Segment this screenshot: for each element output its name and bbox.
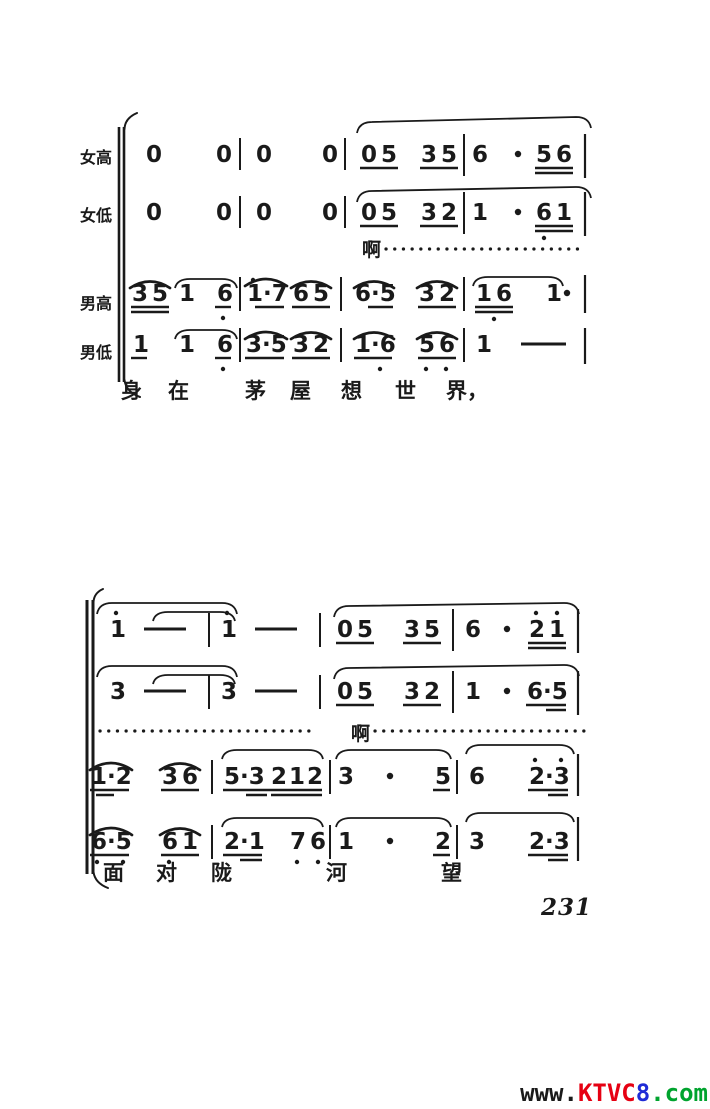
- note: 0: [216, 142, 232, 168]
- watermark: www.KTVC8.com: [520, 1081, 708, 1105]
- note: 05: [337, 617, 377, 643]
- note: 1·2: [91, 764, 132, 790]
- octave-dot: [542, 236, 546, 240]
- part-label: 女低: [80, 206, 112, 225]
- phrase-slur: [357, 117, 591, 133]
- brace-curl: [94, 589, 104, 602]
- octave-dot: [221, 367, 225, 371]
- note: 212: [271, 764, 325, 790]
- note: 1·7: [247, 281, 288, 307]
- tie-bracket: [222, 750, 323, 759]
- lyric: 身: [121, 379, 142, 403]
- lyric: 世: [395, 380, 416, 403]
- page-number: 231: [541, 894, 592, 921]
- note: 6: [217, 332, 233, 358]
- note: 35: [404, 617, 444, 643]
- note: 1: [179, 332, 195, 358]
- lyric: 茅: [245, 379, 266, 403]
- lyric: 屋: [290, 380, 311, 403]
- lyric: 对: [156, 861, 177, 885]
- note: 1: [546, 281, 562, 307]
- note: 1: [465, 679, 481, 705]
- dot-note: [515, 209, 521, 215]
- vocable: 啊: [351, 723, 370, 745]
- watermark-segment: 8: [636, 1079, 650, 1107]
- score-svg: 女高女低男高男低0000053565600000532161啊35161·765…: [0, 0, 710, 1109]
- note: 35: [421, 142, 461, 168]
- note: 6: [469, 764, 485, 790]
- note: 5·3: [224, 764, 265, 790]
- phrase-slur: [334, 603, 579, 617]
- note: 3: [338, 764, 354, 790]
- note: 56: [536, 142, 576, 168]
- octave-dot: [316, 860, 320, 864]
- note: 6·5: [91, 829, 132, 855]
- note: 6·5: [527, 679, 568, 705]
- note: 0: [256, 200, 272, 226]
- octave-dot: [533, 758, 537, 762]
- dot-note: [504, 626, 510, 632]
- note: 1: [472, 200, 488, 226]
- score-page: 女高女低男高男低0000053565600000532161啊35161·765…: [0, 0, 710, 1109]
- note: 32: [421, 200, 461, 226]
- octave-dot: [534, 611, 538, 615]
- note: 0: [146, 200, 162, 226]
- note: 0: [322, 200, 338, 226]
- lyric: 面: [103, 862, 124, 885]
- lyric: 陇: [211, 862, 232, 885]
- octave-dot: [114, 611, 118, 615]
- note: 21: [529, 617, 569, 643]
- brace-curl: [125, 113, 138, 129]
- octave-dot: [424, 367, 428, 371]
- note: 6: [465, 617, 481, 643]
- note: 2·1: [224, 829, 265, 855]
- octave-dot: [559, 758, 563, 762]
- octave-dot: [221, 316, 225, 320]
- dot-note: [515, 151, 521, 157]
- octave-dot: [444, 367, 448, 371]
- lyric: 望: [441, 861, 462, 885]
- note: 3: [110, 679, 126, 705]
- watermark-segment: .com: [650, 1079, 708, 1107]
- note: 32: [404, 679, 444, 705]
- tie-bracket: [222, 818, 323, 827]
- lyric: 想: [341, 380, 362, 403]
- note: 1: [179, 281, 195, 307]
- note: 2: [435, 829, 451, 855]
- octave-dot: [492, 317, 496, 321]
- note: 6: [217, 281, 233, 307]
- note: 2·3: [529, 764, 570, 790]
- tie-bracket: [336, 818, 451, 827]
- note: 6: [472, 142, 488, 168]
- note: 05: [361, 200, 401, 226]
- note: 0: [146, 142, 162, 168]
- note: 1: [476, 332, 492, 358]
- dot-note: [387, 773, 393, 779]
- lyric: 在: [168, 379, 189, 403]
- tie-bracket: [466, 813, 574, 822]
- note: 05: [361, 142, 401, 168]
- lyric: 界，: [446, 380, 488, 403]
- tie-bracket: [336, 750, 451, 759]
- vocable: 啊: [362, 239, 381, 261]
- part-label: 男低: [80, 343, 112, 362]
- octave-dot: [555, 611, 559, 615]
- note: 2·3: [529, 829, 570, 855]
- octave-dot: [95, 860, 99, 864]
- part-label: 男高: [80, 294, 112, 313]
- note: 1: [110, 617, 126, 643]
- note: 05: [337, 679, 377, 705]
- note: 16: [476, 281, 516, 307]
- dot-note: [504, 688, 510, 694]
- phrase-slur: [334, 665, 579, 679]
- dot-note: [387, 838, 393, 844]
- watermark-segment: KTVC: [578, 1079, 636, 1107]
- lyric: 河: [326, 862, 347, 885]
- part-label: 女高: [80, 148, 112, 167]
- octave-dot: [378, 367, 382, 371]
- note: 5: [435, 764, 451, 790]
- watermark-segment: www.: [520, 1079, 578, 1107]
- note: 76: [290, 829, 330, 855]
- octave-dot: [295, 860, 299, 864]
- note: 61: [536, 200, 576, 226]
- note: 1: [133, 332, 149, 358]
- note: 0: [216, 200, 232, 226]
- note: 1: [338, 829, 354, 855]
- tie-bracket: [466, 745, 574, 754]
- dot-note: [564, 290, 570, 296]
- note: 0: [322, 142, 338, 168]
- note: 3: [469, 829, 485, 855]
- note: 0: [256, 142, 272, 168]
